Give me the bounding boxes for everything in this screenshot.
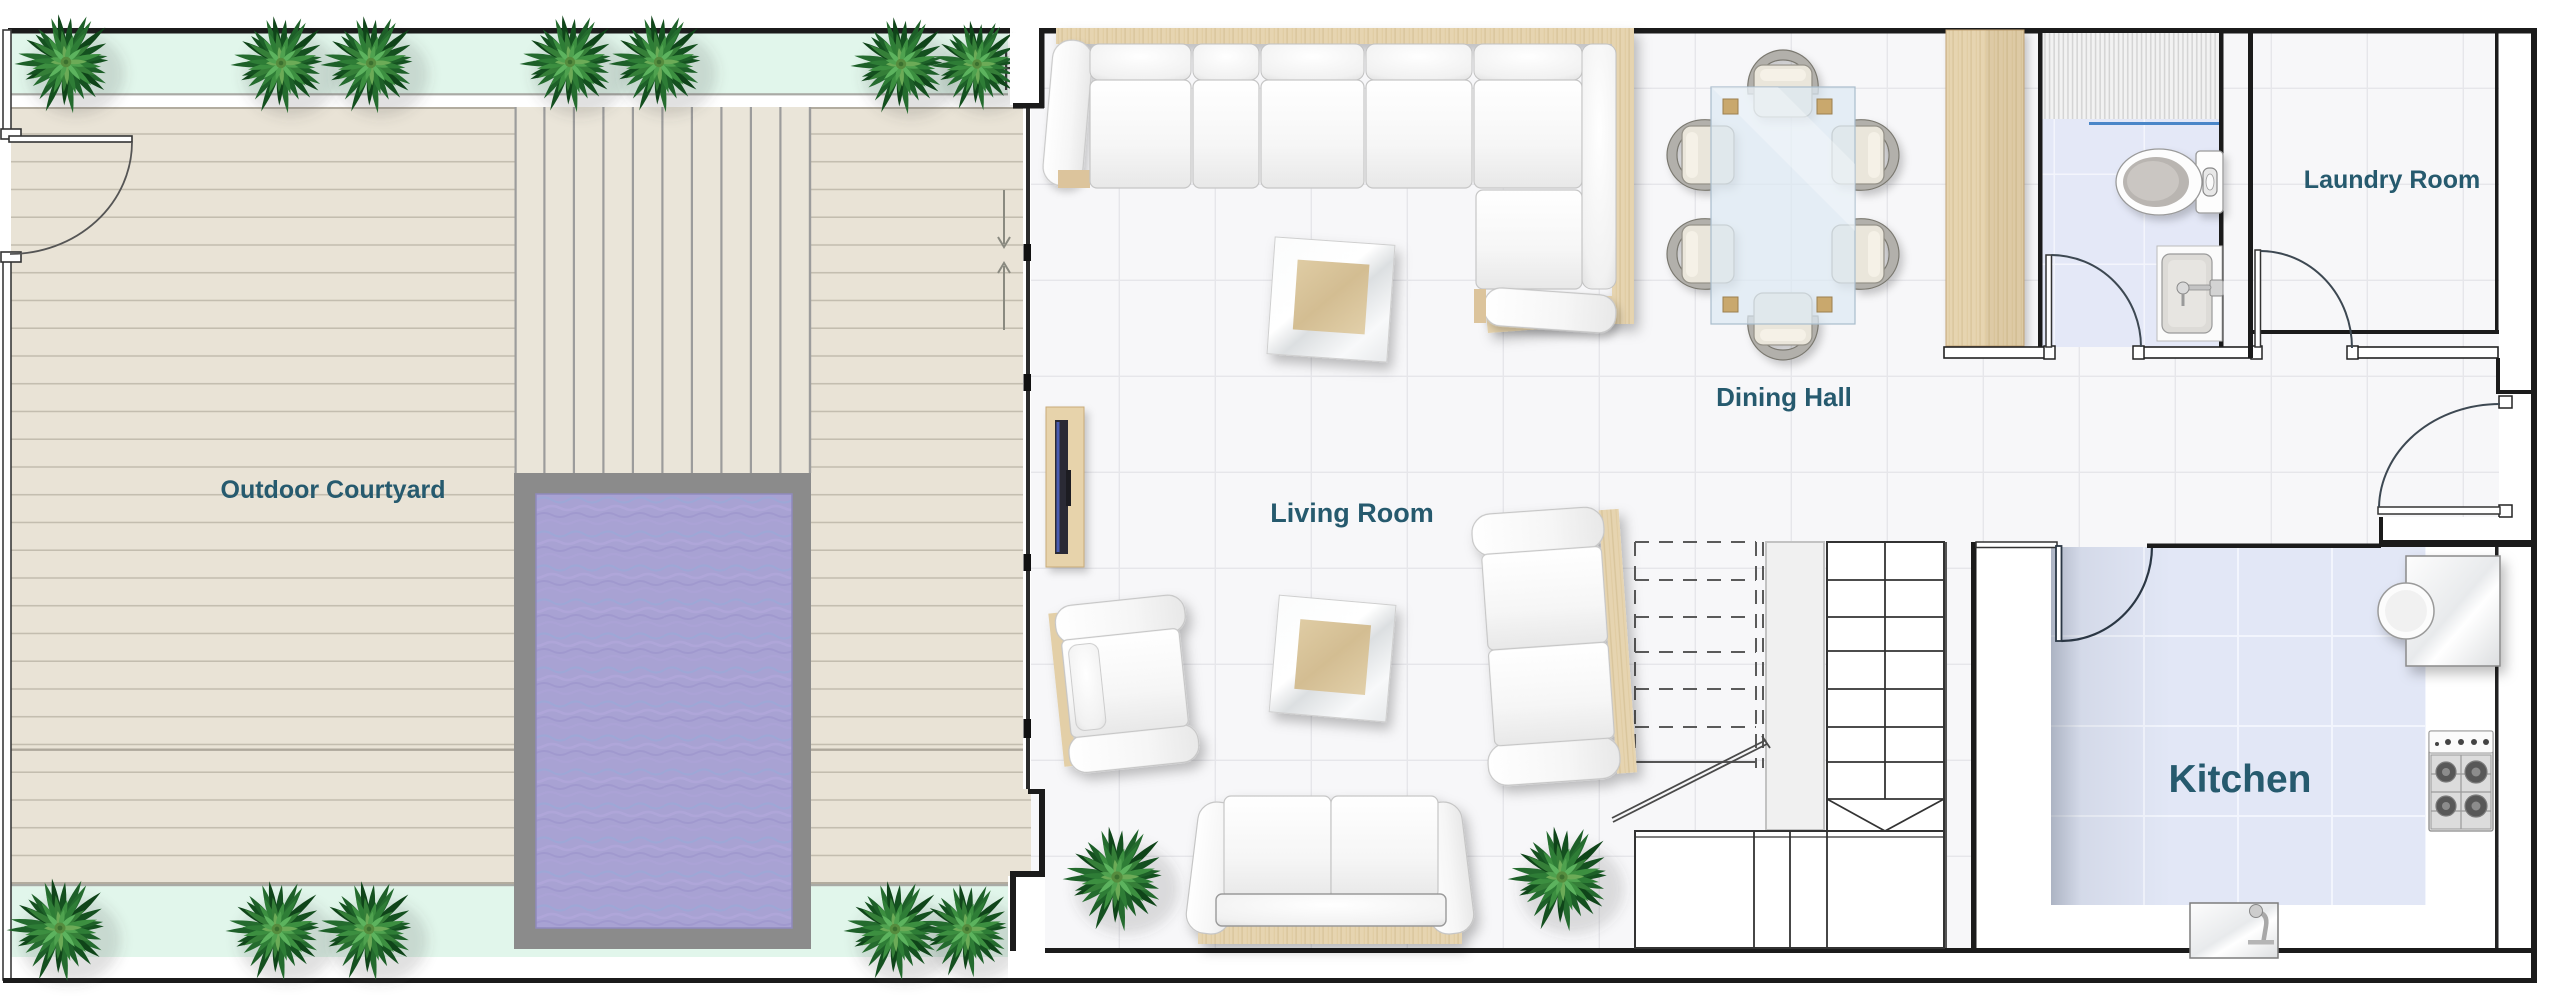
- svg-text:Dining Hall: Dining Hall: [1716, 382, 1852, 412]
- svg-text:Outdoor Courtyard: Outdoor Courtyard: [221, 476, 446, 504]
- svg-text:Living Room: Living Room: [1270, 498, 1434, 528]
- svg-text:Kitchen: Kitchen: [2168, 758, 2311, 801]
- svg-text:Laundry Room: Laundry Room: [2304, 166, 2480, 194]
